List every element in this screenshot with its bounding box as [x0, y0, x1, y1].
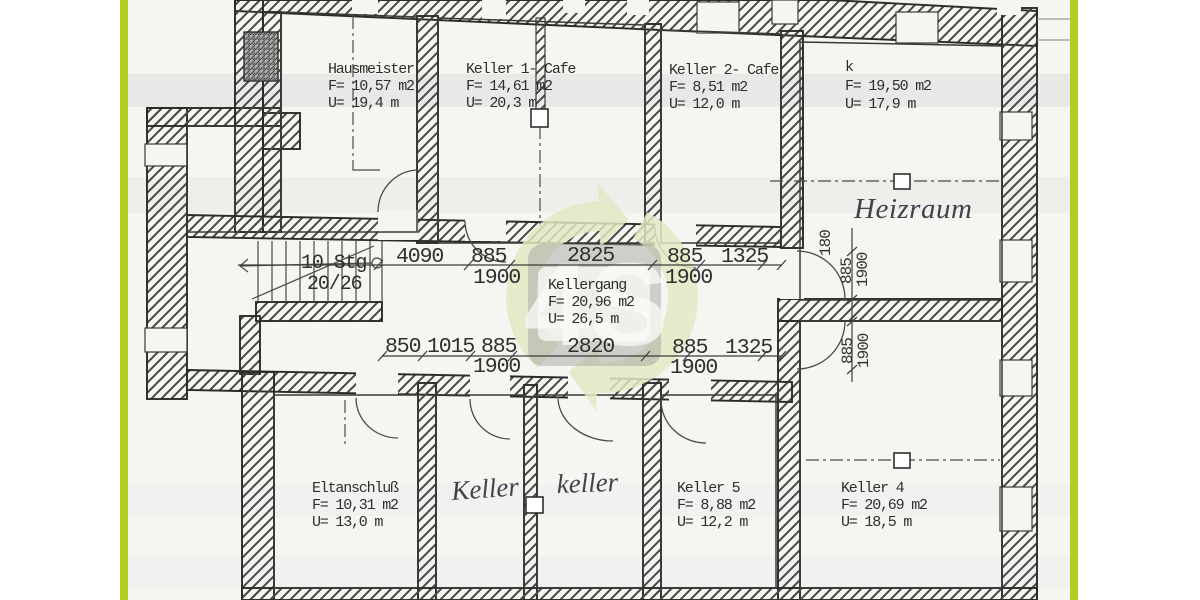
svg-text:F= 14,61 m2: F= 14,61 m2 — [466, 78, 552, 95]
svg-text:Kellergang: Kellergang — [548, 277, 626, 294]
svg-text:Keller 2- Cafe: Keller 2- Cafe — [669, 62, 779, 79]
svg-text:2825: 2825 — [567, 244, 614, 268]
svg-text:Keller 1- Cafe: Keller 1- Cafe — [466, 61, 576, 78]
svg-text:180: 180 — [817, 230, 835, 256]
svg-text:F= 10,57 m2: F= 10,57 m2 — [328, 78, 414, 95]
svg-text:1900: 1900 — [670, 356, 717, 380]
svg-text:F= 19,50 m2: F= 19,50 m2 — [845, 78, 931, 95]
svg-text:20/26: 20/26 — [307, 273, 362, 296]
svg-text:U= 13,0 m: U= 13,0 m — [312, 514, 383, 531]
svg-text:F= 20,96 m2: F= 20,96 m2 — [548, 294, 634, 311]
svg-text:U= 12,2 m: U= 12,2 m — [677, 514, 748, 531]
svg-text:U= 20,3 m: U= 20,3 m — [466, 95, 537, 112]
svg-text:keller: keller — [556, 467, 619, 499]
svg-text:1900: 1900 — [854, 252, 872, 287]
svg-text:1900: 1900 — [473, 355, 520, 379]
svg-text:1325: 1325 — [725, 336, 772, 360]
svg-text:F= 10,31 m2: F= 10,31 m2 — [312, 497, 398, 514]
svg-text:1325: 1325 — [721, 245, 768, 269]
svg-text:1900: 1900 — [855, 333, 873, 368]
svg-text:F= 8,88 m2: F= 8,88 m2 — [677, 497, 755, 514]
svg-text:U= 18,5 m: U= 18,5 m — [841, 514, 912, 531]
svg-text:Keller 5: Keller 5 — [677, 480, 741, 497]
svg-text:Keller 4: Keller 4 — [841, 480, 905, 497]
svg-text:4090: 4090 — [396, 245, 443, 269]
svg-text:Eltanschluß: Eltanschluß — [312, 480, 399, 497]
svg-text:U= 17,9 m: U= 17,9 m — [845, 96, 916, 113]
svg-text:Keller: Keller — [449, 471, 520, 506]
svg-text:k: k — [845, 59, 854, 76]
svg-text:U= 12,0 m: U= 12,0 m — [669, 96, 740, 113]
svg-text:1900: 1900 — [473, 266, 520, 290]
svg-text:10 Stg: 10 Stg — [301, 252, 367, 275]
svg-text:U= 26,5 m: U= 26,5 m — [548, 311, 619, 328]
svg-text:1900: 1900 — [665, 266, 712, 290]
svg-text:F= 8,51 m2: F= 8,51 m2 — [669, 79, 747, 96]
svg-text:850: 850 — [385, 335, 421, 359]
svg-text:U= 19,4 m: U= 19,4 m — [328, 95, 399, 112]
svg-text:2820: 2820 — [567, 335, 614, 359]
svg-text:1015: 1015 — [427, 335, 474, 359]
svg-text:F= 20,69 m2: F= 20,69 m2 — [841, 497, 927, 514]
svg-text:Hausmeister: Hausmeister — [328, 61, 414, 78]
svg-text:Heizraum: Heizraum — [853, 193, 972, 225]
